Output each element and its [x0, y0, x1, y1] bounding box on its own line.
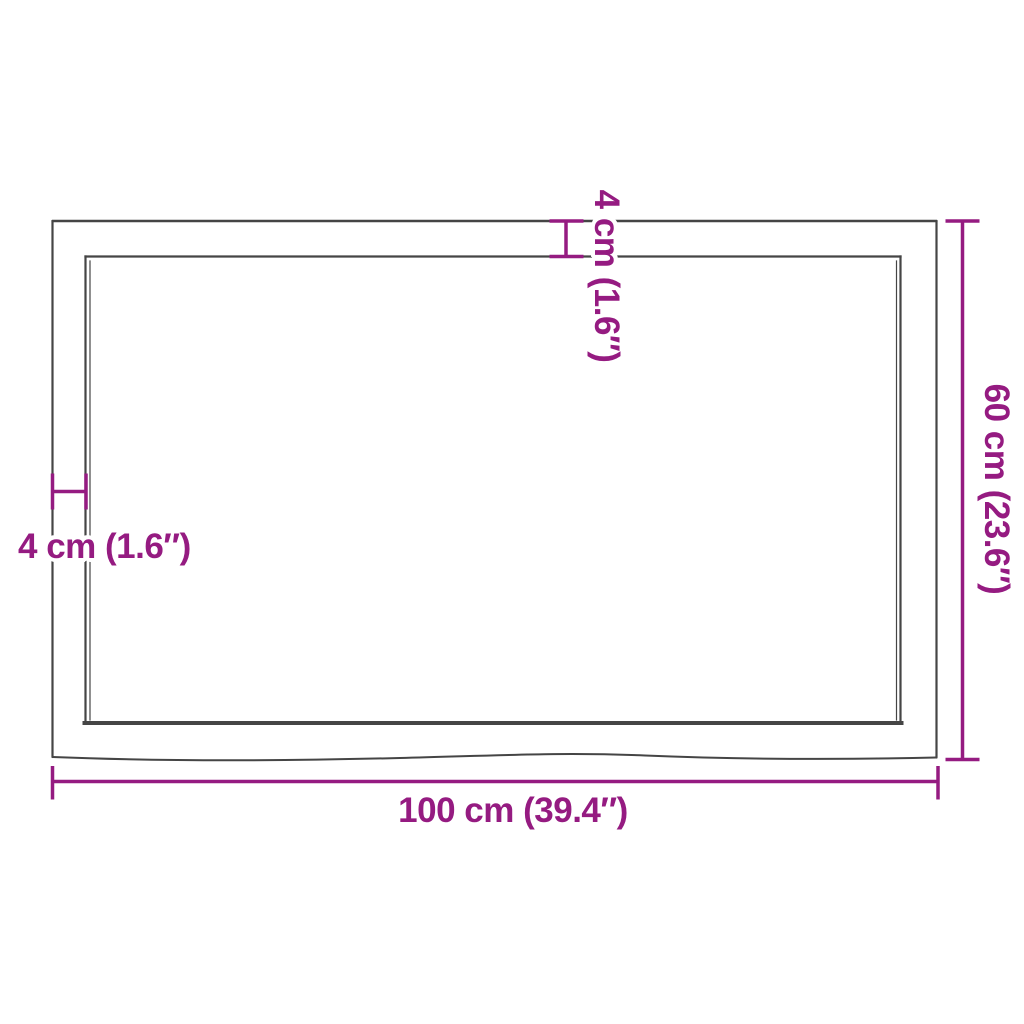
thickness-left-label: 4 cm (1.6″) [18, 527, 191, 567]
width-dimension-label: 100 cm (39.4″) [363, 791, 663, 831]
diagram-canvas [0, 0, 1024, 1024]
height-dimension-line [946, 221, 980, 760]
height-dimension-label: 60 cm (23.6″) [976, 339, 1016, 639]
panel-live-edge-bottom [53, 754, 937, 760]
thickness-left-bracket [53, 474, 87, 510]
thickness-top-label: 4 cm (1.6″) [586, 126, 626, 426]
dimension-diagram: 100 cm (39.4″) 60 cm (23.6″) 4 cm (1.6″)… [0, 0, 1024, 1024]
thickness-top-bracket [550, 221, 584, 257]
